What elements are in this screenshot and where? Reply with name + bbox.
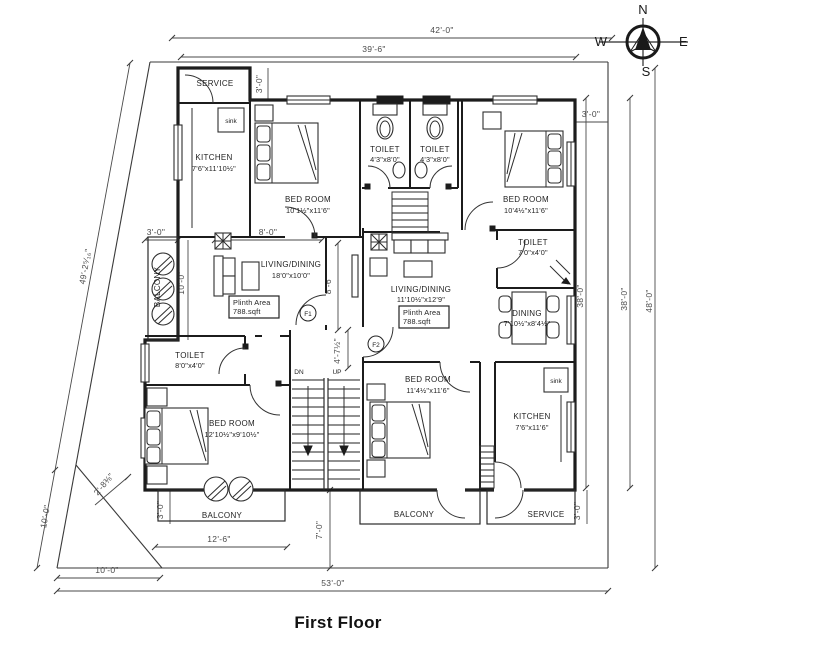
window-west-toilet xyxy=(141,344,149,382)
size-toilet-2: 4'3"x8'0" xyxy=(420,155,450,164)
flat2-tag: F2 xyxy=(368,336,384,352)
door-bedroom-bottom-left xyxy=(250,385,280,415)
compass-north-needle xyxy=(635,27,651,50)
dim-top-outer: 42'-0" xyxy=(430,25,453,35)
bed-bottom-left xyxy=(145,388,208,484)
drawing-title: First Floor xyxy=(294,613,381,632)
dim-corner-cut: 2'-8⅜" xyxy=(92,471,116,497)
window-east-dining xyxy=(567,296,575,344)
dim-east-offset: 3'-0" xyxy=(582,109,600,119)
vent-toilet-1 xyxy=(377,96,403,104)
sink-right-label: sink xyxy=(550,378,562,385)
plinth-flat1-line2: 788.sqft xyxy=(233,307,261,316)
size-kitchen-right: 7'6"x11'6" xyxy=(515,423,549,432)
door-toilet-1 xyxy=(368,166,390,188)
coffee-table-flat1 xyxy=(242,262,259,290)
label-toilet-bottom-left: TOILET xyxy=(175,351,205,360)
dim-top-inner: 39'-6" xyxy=(362,44,385,54)
size-living-flat2: 11'10½"x12'9" xyxy=(397,295,445,304)
fan-flat1 xyxy=(215,233,231,249)
plinth-flat2-line1: Plinth Area xyxy=(403,308,441,317)
label-bedroom-bottom-mid: BED ROOM xyxy=(405,375,451,384)
dim-front-offset: 7'-0" xyxy=(314,521,324,539)
label-bedroom-top-right: BED ROOM xyxy=(503,195,549,204)
size-bedroom-bottom-left: 12'10½"x9'10½" xyxy=(205,430,260,439)
dim-east-outer: 48'-0" xyxy=(644,289,654,312)
door-bedroom-top-right xyxy=(465,202,493,230)
compass: N E S W xyxy=(595,2,688,79)
dim-balcony-bl-depth: 3'-0" xyxy=(155,501,165,519)
dim-service-bottom-depth: 3'-0" xyxy=(572,502,582,520)
stairs-service-strip xyxy=(480,446,494,488)
basin-toilet-1 xyxy=(393,162,405,178)
label-toilet-1: TOILET xyxy=(370,145,400,154)
size-toilet-bottom-left: 8'0"x4'0" xyxy=(175,361,205,370)
plinth-flat2: Plinth Area 788.sqft xyxy=(399,306,449,328)
size-toilet-1: 4'3"x8'0" xyxy=(370,155,400,164)
dim-living-depth: 8'-6" xyxy=(323,276,333,294)
stairs-upper-landing xyxy=(392,192,428,236)
label-bedroom-bottom-left: BED ROOM xyxy=(209,419,255,428)
window-top-bedroom-right xyxy=(493,96,537,104)
label-dining-flat2: DINING xyxy=(512,309,542,318)
stairs-main: DN UP xyxy=(292,369,360,490)
label-service-top: SERVICE xyxy=(196,79,233,88)
armchair-flat2 xyxy=(370,258,387,276)
vent-toilet-2 xyxy=(423,96,450,104)
size-bedroom-bottom-mid: 11'4½"x11'6" xyxy=(406,386,450,395)
label-toilet-right: TOILET xyxy=(518,238,548,247)
label-balcony-bottom-mid: BALCONY xyxy=(394,510,435,519)
tv-unit-flat1 xyxy=(352,255,358,297)
size-bedroom-top-right: 10'4½"x11'6" xyxy=(504,206,548,215)
label-service-bottom: SERVICE xyxy=(527,510,564,519)
label-balcony-west: BALCONY xyxy=(153,266,162,307)
dim-balcony-west-width: 3'-0" xyxy=(147,227,165,237)
flat1-tag: F1 xyxy=(300,305,316,321)
label-living-flat2: LIVING/DINING xyxy=(391,285,451,294)
flat1-label: F1 xyxy=(304,311,312,318)
plinth-flat1-line1: Plinth Area xyxy=(233,298,271,307)
dim-bottom-outer: 53'-0" xyxy=(321,578,344,588)
flat2-label: F2 xyxy=(372,342,380,349)
dim-stair-width: 4'-7½" xyxy=(332,338,342,364)
door-balcony-bottom-mid xyxy=(437,490,465,518)
size-kitchen-left: 7'6"x11'10½" xyxy=(192,164,236,173)
dim-east-mid: 38'-0" xyxy=(619,287,629,310)
window-east-bedroom xyxy=(567,142,575,186)
fan-flat2 xyxy=(371,234,387,250)
size-toilet-right: 7'0"x4'0" xyxy=(518,248,548,257)
door-service-bottom xyxy=(495,490,523,518)
bed-bottom-mid xyxy=(367,384,430,477)
compass-n-label: N xyxy=(638,2,647,17)
dining-set xyxy=(499,292,559,344)
compass-s-label: S xyxy=(642,64,651,79)
window-east-kitchen xyxy=(567,402,575,452)
dimension-labels: 42'-0" 39'-6" 3'-0" 8'-0" 3'-0" 10'-0" 8… xyxy=(38,25,654,588)
floor-plan-canvas: 42'-0" 39'-6" 3'-0" 8'-0" 3'-0" 10'-0" 8… xyxy=(0,0,822,652)
bed-top-left xyxy=(255,105,318,183)
coffee-table-flat2 xyxy=(404,261,432,277)
bed-top-right xyxy=(483,112,563,187)
wc-toilet-2 xyxy=(415,104,447,178)
stair-arrow-down xyxy=(304,446,312,455)
plinth-flat1: Plinth Area 788.sqft xyxy=(229,296,279,318)
door-toilet-bottom-left xyxy=(219,348,245,374)
stairs-dn-label: DN xyxy=(294,369,304,376)
plinth-flat2-line2: 788.sqft xyxy=(403,317,431,326)
wc-toilet-1 xyxy=(373,104,405,178)
dim-service-depth: 3'-0" xyxy=(254,75,264,93)
basin-toilet-2 xyxy=(415,162,427,178)
dim-west-boundary-upper: 49'-2⁵⁄₁₆" xyxy=(77,248,93,285)
sofa-flat1 xyxy=(214,256,259,296)
dim-foyer-width: 8'-0" xyxy=(259,227,277,237)
label-balcony-bottom-left: BALCONY xyxy=(202,511,243,520)
label-living-flat1: LIVING/DINING xyxy=(261,260,321,269)
shower-toilet-right xyxy=(550,260,570,284)
label-kitchen-right: KITCHEN xyxy=(513,412,550,421)
door-kitchen-right xyxy=(495,462,521,488)
window-top-bedroom-left xyxy=(287,96,330,104)
size-bedroom-top-left: 10'1½"x11'6" xyxy=(286,206,330,215)
label-kitchen-left: KITCHEN xyxy=(195,153,232,162)
stairs-up-label: UP xyxy=(332,369,341,376)
dim-bottom-west: 10'-0" xyxy=(95,565,118,575)
sink-left-label: sink xyxy=(225,118,237,125)
dim-west-boundary-lower: 10'-0" xyxy=(38,504,52,529)
compass-w-label: W xyxy=(595,34,608,49)
label-toilet-2: TOILET xyxy=(420,145,450,154)
size-dining-flat2: 7'10½"x8'4½" xyxy=(504,319,551,328)
floor-plan-drawing: 42'-0" 39'-6" 3'-0" 8'-0" 3'-0" 10'-0" 8… xyxy=(0,0,822,652)
stair-arrow-up xyxy=(340,446,348,455)
size-living-flat1: 18'0"x10'0" xyxy=(272,271,310,280)
dim-balcony-bl-width: 12'-6" xyxy=(207,534,230,544)
window-west-kitchen xyxy=(174,125,182,180)
label-bedroom-top-left: BED ROOM xyxy=(285,195,331,204)
compass-e-label: E xyxy=(679,34,688,49)
planters-balcony-bottom-left xyxy=(204,477,253,501)
